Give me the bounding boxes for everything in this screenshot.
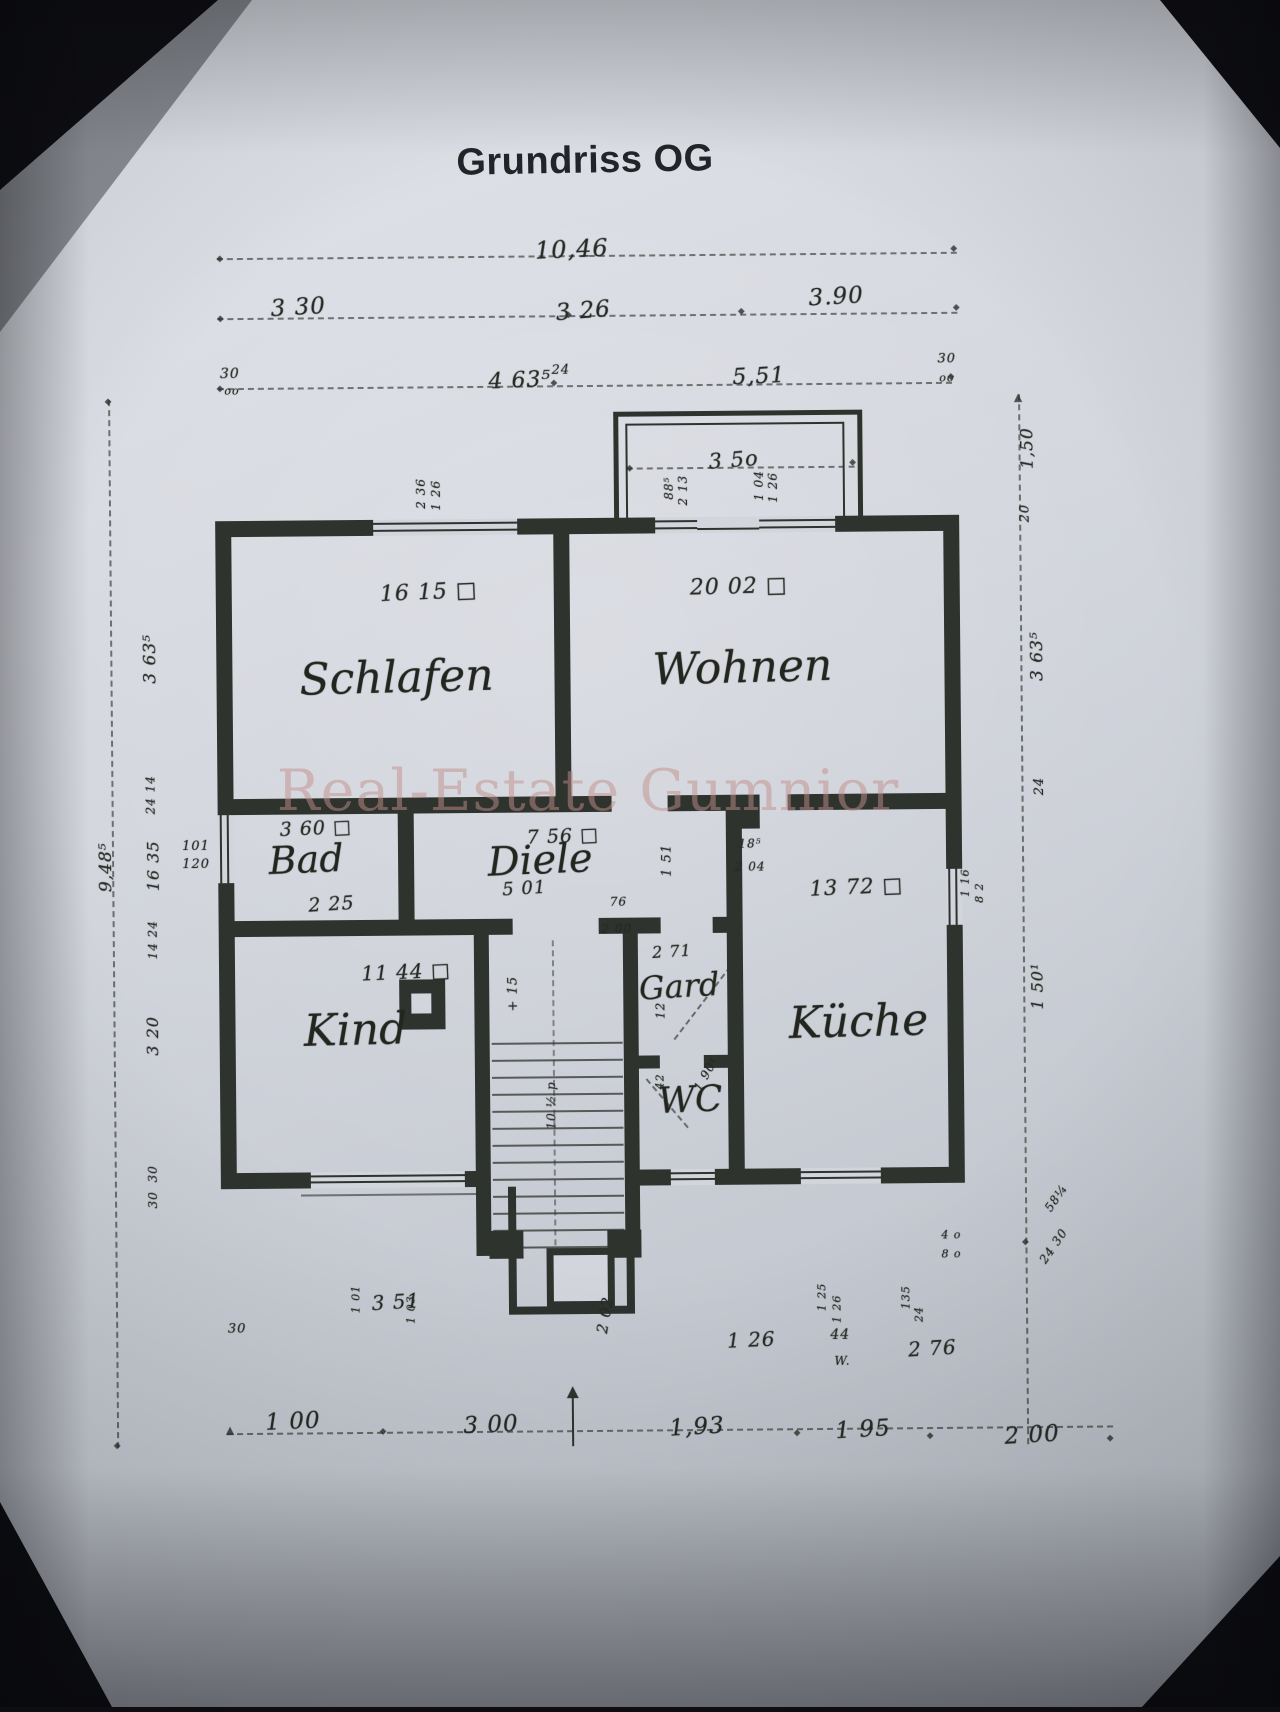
dimension-label: 30 <box>146 1191 160 1208</box>
dimension-label: 3 00 <box>463 1411 519 1439</box>
dimension-label: 5 01 <box>502 877 547 901</box>
dimension-line <box>218 382 952 390</box>
dimension-label: 1 04 <box>752 470 766 501</box>
dimension-label: 1 03 <box>404 1295 417 1324</box>
wall-segment <box>215 520 373 537</box>
wall-segment <box>221 1172 311 1189</box>
dimension-label: 30 <box>937 351 956 366</box>
dimension-label: 1 26 <box>830 1295 843 1324</box>
dimension-label: 2 00 <box>601 922 632 936</box>
dimension-label: 2 13 <box>676 475 690 506</box>
wall-segment <box>943 515 962 869</box>
dim-tick: ◆ <box>217 314 224 324</box>
dim-tick: ◆ <box>550 378 557 388</box>
wall-segment <box>474 919 492 1256</box>
wall-segment <box>715 1168 801 1185</box>
dimension-label: 1 16 <box>959 868 972 897</box>
dim-tick: ◆ <box>1107 1433 1114 1443</box>
dimension-label: 101 <box>182 839 210 854</box>
room-area-diele: 7 56 □ <box>526 824 599 849</box>
dim-tick: ◆ <box>216 384 223 394</box>
dimension-label: 30 <box>228 1322 247 1337</box>
room-area-schlafen: 16 15 □ <box>379 578 478 607</box>
dim-tick: ◆ <box>626 464 633 474</box>
dimension-label: 2 00 <box>1004 1421 1061 1450</box>
window-line <box>301 1193 477 1197</box>
dim-tick: ▲ <box>226 1424 235 1437</box>
wall-segment <box>713 917 743 933</box>
room-area-wohnen: 20 02 □ <box>690 573 788 601</box>
dimension-label: 1,50 <box>1017 427 1037 469</box>
entrance-arrow-head <box>567 1386 579 1398</box>
dim-tick: ◆ <box>950 244 957 254</box>
dim-tick: ◆ <box>794 1428 801 1438</box>
dimension-label: 1 51 <box>659 844 674 877</box>
window-line <box>655 527 697 529</box>
room-area-kueche: 13 72 □ <box>809 873 904 901</box>
floor-plan-drawing: Schlafen16 15 □Wohnen20 02 □Bad3 60 □Die… <box>0 0 1280 1712</box>
dimension-label: 88⁵ <box>662 477 676 500</box>
dimension-label: 18⁵ <box>738 837 761 851</box>
dimension-label: 8 2 <box>973 882 986 903</box>
wall-segment <box>215 521 234 815</box>
wall-segment <box>947 925 965 1183</box>
dimension-label: 135 <box>899 1285 912 1309</box>
dim-tick: ◆ <box>947 372 954 382</box>
dimension-label: 16 35 <box>143 840 162 891</box>
dim-tick: ◆ <box>105 397 112 407</box>
dimension-label: 24 14 <box>143 775 157 814</box>
dimension-label: 3 26 <box>555 296 612 326</box>
dim-tick: ▲ <box>1014 391 1023 404</box>
dimension-label: 2 36 <box>414 478 428 509</box>
room-label-kueche: Küche <box>788 994 929 1049</box>
entrance-arrow <box>572 1396 574 1446</box>
dimension-label: + 15 <box>506 976 521 1012</box>
dimension-label: 24 <box>1032 777 1047 796</box>
wall-segment <box>398 814 415 920</box>
dimension-label: 58¼ <box>1042 1182 1070 1215</box>
wall-segment <box>881 1167 965 1184</box>
dimension-label: 9,48⁵ <box>96 842 116 892</box>
dim-tick: ◆ <box>927 1431 934 1441</box>
dimension-label: 2 25 <box>308 892 356 917</box>
dimension-label: 30 <box>146 1165 160 1182</box>
dimension-label: 14 24 <box>146 920 160 959</box>
dimension-label: 20 <box>1017 504 1032 523</box>
room-label-gard: Gard <box>638 965 721 1008</box>
room-area-gard: 2 71 <box>652 941 693 962</box>
room-label-wc: WC <box>657 1078 723 1122</box>
room-label-bad: Bad <box>268 836 345 883</box>
window-line <box>671 1172 715 1174</box>
dimension-label: 8 o <box>941 1247 961 1260</box>
dimension-label: 1 01 <box>349 1285 362 1314</box>
dimension-label: 1 50¹ <box>1027 962 1046 1009</box>
dimension-label: 42 <box>653 1073 666 1089</box>
wall-segment <box>639 1055 660 1068</box>
dimension-line <box>108 400 119 1448</box>
dimension-label: 10 ½ p <box>544 1081 558 1129</box>
wall-segment <box>639 1169 671 1185</box>
dim-tick: ◆ <box>738 307 745 317</box>
dimension-label: 2 76 <box>907 1335 957 1362</box>
scanned-page: Grundriss OG <box>0 0 1280 1707</box>
dimension-label: 1 25 <box>815 1283 828 1312</box>
dim-tick: ◆ <box>849 458 856 468</box>
dimension-label: 2 04 <box>735 859 766 873</box>
dimension-label: 4 o <box>941 1228 961 1241</box>
dimension-label: 1,93 <box>669 1412 726 1441</box>
dimension-label: 5,51 <box>732 363 786 390</box>
wall-segment <box>465 1171 476 1187</box>
dimension-label: 1 26 <box>766 472 780 503</box>
dimension-label: 24 <box>551 363 570 378</box>
dim-tick: ◆ <box>216 254 223 264</box>
dimension-label: 1 26 <box>429 480 443 511</box>
room-label-schlafen: Schlafen <box>299 650 494 706</box>
dim-tick: ◆ <box>380 1427 387 1437</box>
dimension-label: 120 <box>182 857 210 872</box>
dimension-label: 76 <box>610 895 627 909</box>
chimney-flue <box>411 993 431 1013</box>
dim-tick: ◆ <box>565 310 572 320</box>
dimension-label: 1 26 <box>727 1327 777 1353</box>
wall-jamb <box>489 1231 523 1259</box>
dim-tick: ◆ <box>953 303 960 313</box>
window-line <box>671 1178 715 1180</box>
dimension-label: W. <box>834 1354 850 1368</box>
dimension-label: 3 30 <box>270 293 327 322</box>
room-label-kind: Kind <box>303 1003 408 1057</box>
dimension-label: 10,46 <box>534 234 609 265</box>
dimension-label: 44 <box>830 1327 850 1343</box>
dimension-label: 3 63⁵ <box>140 634 160 684</box>
dimension-label: 1 00 <box>265 1407 321 1435</box>
dimension-label: 3 63⁵ <box>1027 631 1047 681</box>
dimension-label: 3 20 <box>143 1016 162 1056</box>
dimension-label: 12 <box>653 1002 667 1019</box>
wall-segment <box>233 919 513 937</box>
dim-tick: ◆ <box>1022 1237 1029 1247</box>
dimension-label: 24 <box>912 1306 925 1322</box>
photo-of-floor-plan: { "header": { "title": "Grundriss OG" },… <box>0 0 1280 1707</box>
room-label-wohnen: Wohnen <box>652 640 833 696</box>
dimension-label: 4 63⁵ <box>488 367 552 395</box>
dimension-label: 1 95 <box>835 1415 892 1444</box>
room-area-kind: 11 44 □ <box>361 958 451 986</box>
dimension-label: 30 <box>220 366 240 382</box>
dimension-label: oo <box>224 385 239 398</box>
dimension-line <box>1018 394 1029 1444</box>
dimension-label: 3.90 <box>808 282 865 311</box>
dimension-label: 24 30 <box>1037 1226 1071 1266</box>
dim-tick: ◆ <box>114 1441 121 1451</box>
watermark: Real-Estate Gumnior <box>277 758 899 824</box>
wall-segment <box>553 534 571 796</box>
